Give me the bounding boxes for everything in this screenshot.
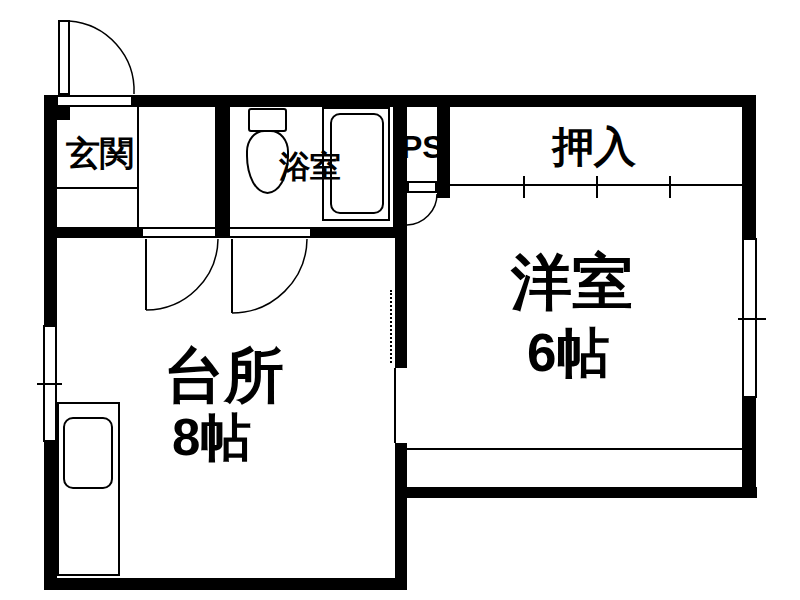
wall-bathroom-right	[393, 107, 407, 238]
wall-genkan-bottom	[44, 227, 143, 238]
kitchen-sink	[63, 417, 113, 489]
bathroom-door-arc	[232, 239, 307, 313]
ps-label: PS	[401, 131, 444, 163]
wall-right-upper	[742, 95, 756, 238]
genkan-step-line	[57, 187, 138, 189]
western-room-size-label: 6帖	[527, 326, 609, 379]
wall-right-lower	[742, 398, 756, 498]
kitchen-label: 台所	[164, 346, 284, 406]
wall-left-upper	[44, 107, 57, 325]
wall-kitchen-western-upper	[395, 230, 407, 368]
wall-left-lower	[44, 442, 57, 590]
kitchen-size-label: 8帖	[172, 412, 251, 463]
western-room-label: 洋室	[511, 252, 633, 313]
genkan-label: 玄関	[66, 136, 134, 170]
ps-door-panel	[407, 181, 437, 193]
entrance-door-leaf	[58, 20, 70, 95]
closet-track-tick	[523, 176, 525, 198]
bathroom-door-opening	[230, 227, 310, 238]
toilet-tank	[248, 108, 287, 132]
hall-kitchen-door-opening	[143, 227, 215, 238]
closet-track-tick	[596, 176, 598, 198]
wall-top	[131, 95, 756, 107]
genkan-hall-divider-line	[137, 107, 139, 228]
doorway-open-line	[394, 368, 396, 443]
kitchen-appliance-dotted-line	[390, 290, 392, 363]
wall-bathroom-bottom	[310, 227, 395, 238]
wall-kitchen-bottom	[44, 578, 407, 590]
wall-kitchen-western-lower	[395, 443, 407, 590]
window-right-mullion-tick	[738, 318, 766, 320]
wall-hall-bathroom-divider	[215, 107, 230, 238]
entrance-door-arc	[69, 21, 134, 94]
hall-kitchen-door-arc	[146, 239, 218, 310]
closet-label: 押入	[552, 126, 636, 168]
western-room-south-line	[407, 448, 743, 450]
bathroom-label: 浴室	[279, 151, 341, 182]
wall-western-bottom	[407, 487, 757, 498]
ps-door-arc	[407, 194, 437, 225]
hall-kitchen-door-leaf	[145, 239, 147, 310]
entrance-door-opening	[58, 95, 131, 107]
floor-plan: 玄関 浴室 PS 押入 洋室 6帖 台所 8帖	[0, 0, 800, 600]
wall-top-left-stub	[44, 95, 58, 107]
bathroom-door-leaf	[231, 239, 233, 313]
window-left-mullion-tick	[37, 383, 62, 385]
wall-entrance-corner	[57, 107, 70, 120]
closet-track-tick	[669, 176, 671, 198]
